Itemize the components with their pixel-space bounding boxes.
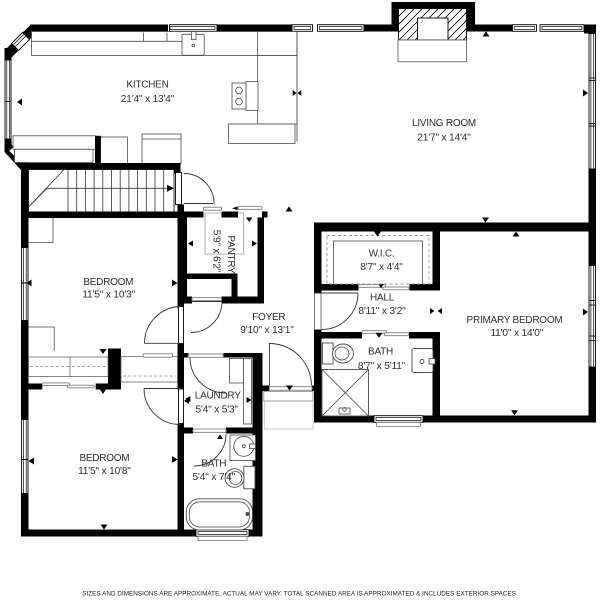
svg-text:PRIMARY BEDROOM: PRIMARY BEDROOM [467, 315, 563, 326]
svg-text:BATH: BATH [368, 347, 393, 358]
svg-text:9'10" x 13'1": 9'10" x 13'1" [240, 325, 294, 336]
svg-text:5'4" x 7'4": 5'4" x 7'4" [193, 472, 236, 483]
svg-text:LIVING ROOM: LIVING ROOM [412, 118, 476, 129]
svg-text:8'11" x 3'2": 8'11" x 3'2" [358, 306, 406, 317]
svg-text:BEDROOM: BEDROOM [83, 277, 133, 288]
svg-text:11'5" x 10'3": 11'5" x 10'3" [82, 289, 135, 300]
svg-text:HALL: HALL [370, 293, 395, 304]
svg-text:21'4" x 13'4": 21'4" x 13'4" [121, 94, 175, 105]
svg-text:BATH: BATH [201, 459, 226, 470]
svg-text:PANTRY: PANTRY [225, 235, 236, 274]
svg-text:11'0" x 14'0": 11'0" x 14'0" [490, 328, 543, 339]
svg-text:21'7" x 14'4": 21'7" x 14'4" [417, 133, 471, 144]
svg-text:8'7" x 4'4": 8'7" x 4'4" [360, 262, 403, 273]
svg-text:FOYER: FOYER [252, 312, 285, 323]
svg-text:11'5" x 10'8": 11'5" x 10'8" [78, 466, 131, 477]
svg-text:SIZES AND DIMENSIONS ARE APPRO: SIZES AND DIMENSIONS ARE APPROXIMATE, AC… [82, 591, 518, 598]
svg-text:W.I.C.: W.I.C. [369, 249, 395, 260]
svg-text:LAUNDRY: LAUNDRY [195, 391, 241, 402]
svg-text:5'4" x 5'3": 5'4" x 5'3" [195, 404, 238, 415]
svg-text:KITCHEN: KITCHEN [126, 80, 168, 91]
svg-text:5'9" x 6'2": 5'9" x 6'2" [210, 230, 221, 273]
svg-text:BEDROOM: BEDROOM [79, 453, 129, 464]
